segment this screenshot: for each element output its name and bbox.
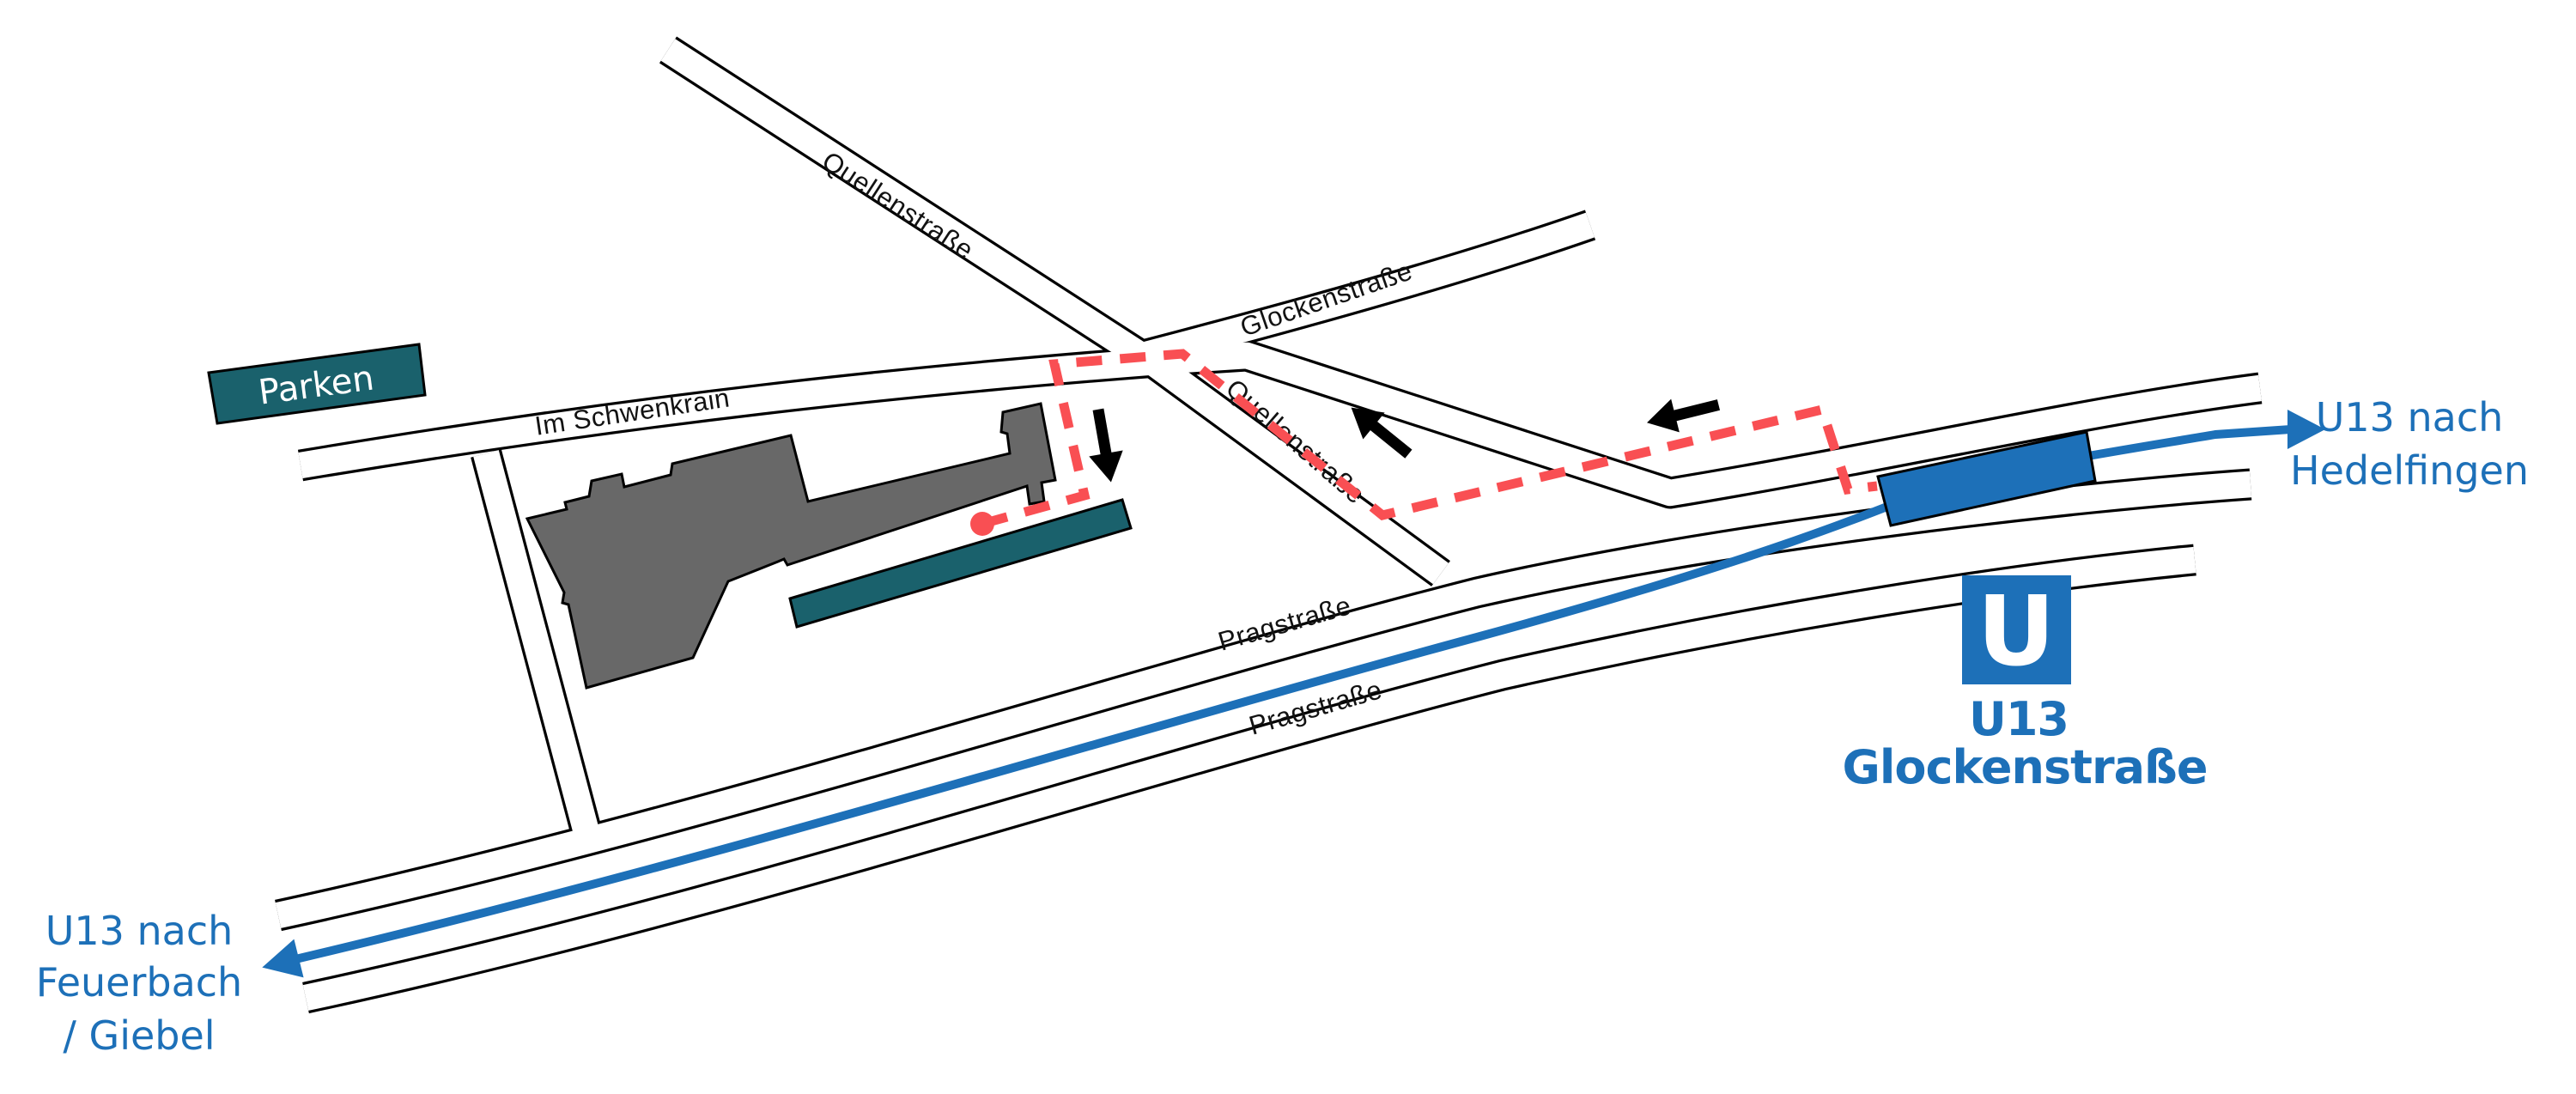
station-name-label: Glockenstraße	[1843, 740, 2208, 794]
dest-feuerbach-line3: / Giebel	[63, 1012, 215, 1059]
ubahn-logo-letter: U	[1978, 576, 2056, 688]
destination-feuerbach: U13 nach Feuerbach / Giebel	[36, 908, 242, 1059]
station-line-label: U13	[1969, 692, 2069, 746]
label-im-schwenkrain: Im Schwenkrain	[533, 382, 732, 441]
dest-feuerbach-line2: Feuerbach	[36, 959, 242, 1006]
walking-arrow-icon	[1081, 406, 1127, 485]
dest-feuerbach-line1: U13 nach	[46, 908, 234, 954]
u13-arrow-feuerbach	[258, 939, 304, 987]
wayfinding-map: Im Schwenkrain Quellenstraße Glockenstra…	[0, 0, 2576, 1094]
label-quellenstrasse-upper: Quellenstraße	[817, 145, 979, 265]
destination-hedelfingen: U13 nach Hedelfingen	[2290, 394, 2529, 494]
dest-hedelfingen-line1: U13 nach	[2316, 394, 2504, 441]
blue-arrow-icon	[258, 939, 304, 987]
dest-hedelfingen-line2: Hedelfingen	[2290, 447, 2529, 494]
parking-area: Parken	[209, 344, 425, 423]
entrance-dot-icon	[970, 512, 994, 536]
